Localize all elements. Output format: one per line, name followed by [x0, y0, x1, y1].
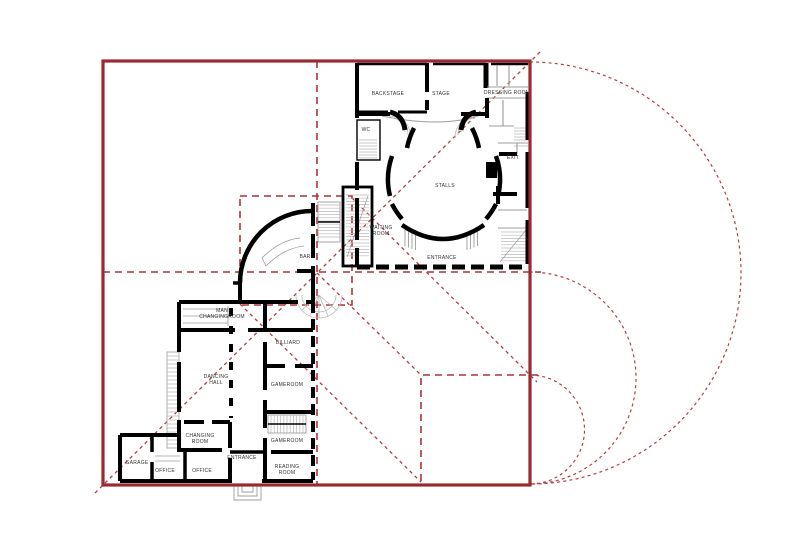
- office-closet-lines: [155, 456, 180, 461]
- room-label-gameroom-1: GAMEROOM: [271, 382, 303, 388]
- entrance-steps: [234, 486, 261, 500]
- lower-right-dashed-square: [421, 375, 541, 481]
- room-label-theater-entrance: ENTRANCE: [427, 255, 457, 261]
- room-label-stage: STAGE: [432, 91, 450, 97]
- proportion-overlay: [95, 52, 741, 493]
- room-label-entrance: ENTRANCE: [227, 455, 257, 461]
- proscenium-left-pier: [390, 112, 405, 130]
- room-label-stalls: STALLS: [435, 183, 455, 189]
- room-label-bar: BAR: [299, 254, 310, 260]
- stalls-right-pier: [486, 162, 497, 178]
- room-label-changing-room: CHANGINGROOM: [186, 433, 215, 445]
- stair-details: [155, 114, 528, 500]
- curved-ramp: [262, 238, 304, 266]
- room-label-reading-room: READINGROOM: [275, 464, 300, 476]
- center-stair-treads: [318, 205, 340, 237]
- room-label-dressing-room: DRESSING ROOM: [484, 90, 530, 96]
- exit-stair-diagonal: [500, 230, 526, 262]
- floor-plan-page: BACKSTAGESTAGEDRESSING ROOMWCEXITSTALLSW…: [0, 0, 800, 552]
- room-label-gameroom-2: GAMEROOM: [271, 438, 303, 444]
- wc-stair-treads: [359, 140, 377, 158]
- garage-walls: [120, 435, 179, 481]
- semicircle-arc-medium: [530, 272, 636, 484]
- diagonal-center-to-square: [317, 273, 421, 375]
- floor-plan-canvas: BACKSTAGESTAGEDRESSING ROOMWCEXITSTALLSW…: [0, 0, 800, 552]
- room-label-office-1: OFFICE: [155, 468, 175, 474]
- room-label-wc: WC: [362, 127, 371, 133]
- room-label-exit: EXIT: [507, 155, 519, 161]
- room-label-backstage: BACKSTAGE: [372, 91, 405, 97]
- room-label-dancing-hall: DANCINGHALL: [204, 374, 229, 386]
- room-label-man-changingroom: MANCHANGINGROOM: [199, 308, 245, 320]
- semicircle-arc-large: [530, 62, 741, 484]
- room-label-garage: GARAGE: [126, 460, 149, 466]
- spiral-stair-fan: [296, 295, 342, 318]
- room-label-waiting-room: WAITINGROOM: [370, 225, 393, 237]
- semicircle-arc-small: [530, 375, 585, 484]
- room-label-office-2: OFFICE: [192, 468, 212, 474]
- room-label-billiard: BILLIARD: [276, 340, 300, 346]
